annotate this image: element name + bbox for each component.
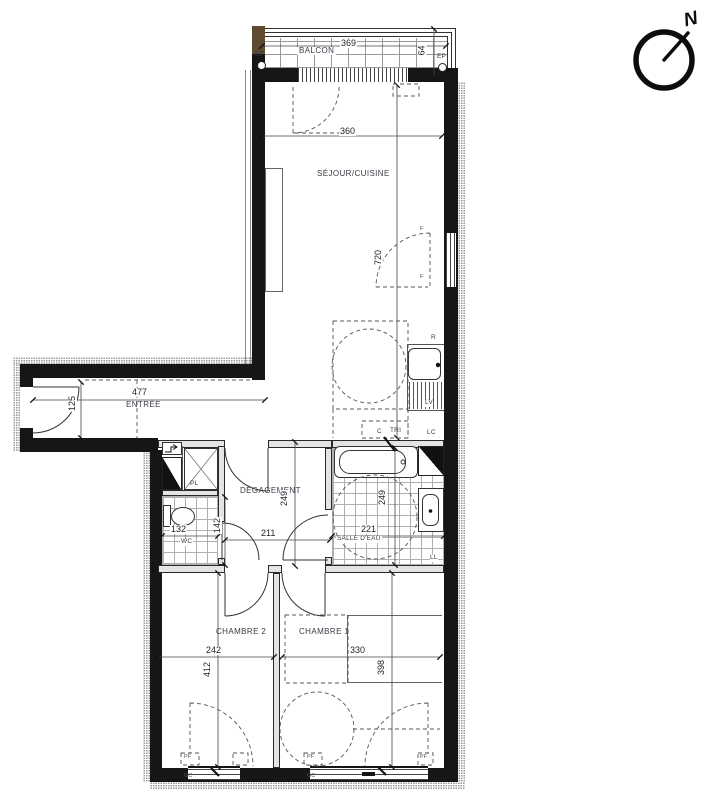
- c-label: C: [377, 429, 382, 436]
- ep-label: EP: [255, 52, 264, 59]
- entry-zone-dashed: [85, 380, 252, 438]
- dim-entree-width: 477: [131, 388, 148, 397]
- wall: [444, 287, 458, 768]
- partition: [182, 446, 183, 490]
- dim-wc-width: 132: [170, 525, 187, 534]
- shutter-box-dashed: [393, 84, 419, 96]
- porte-fenetre-label: PF: [184, 755, 191, 761]
- garde-corps-label: GC: [184, 774, 192, 780]
- wall: [252, 26, 265, 54]
- door-swing-arc: [283, 515, 328, 560]
- window-handle: [362, 772, 375, 776]
- dim-wc-depth: 142: [213, 517, 222, 534]
- dim-balcony-width: 369: [340, 39, 357, 48]
- dim-degagement-width: 211: [260, 529, 276, 538]
- dim-chambre1-depth: 398: [377, 659, 386, 676]
- downpipe-icon: [438, 63, 447, 72]
- clearance-circle-dashed: [280, 692, 354, 766]
- partition: [218, 558, 225, 565]
- balcony-railing: [258, 28, 456, 29]
- bathtub-icon: [339, 450, 406, 474]
- bedroom2-window: [188, 766, 240, 782]
- wall: [252, 66, 265, 380]
- room-label-entree: ENTRÉE: [126, 401, 161, 409]
- porte-fenetre-label: PF: [307, 755, 314, 761]
- wall: [20, 378, 33, 387]
- vent-grille-icon: [162, 442, 182, 455]
- partition: [268, 440, 332, 448]
- room-label-chambre1: CHAMBRE 1: [299, 628, 349, 636]
- room-label-salle-eau: SALLE D'EAU: [336, 536, 382, 543]
- lave-linge-label: LL: [430, 555, 438, 562]
- kitchen-sink-icon: [408, 348, 441, 380]
- kitchen-counter: [407, 410, 444, 411]
- door-swing-arc: [225, 573, 268, 616]
- dim-salle-eau-depth: 249: [378, 489, 387, 506]
- balcony-railing: [258, 32, 452, 33]
- room-label-wc: WC: [180, 539, 193, 546]
- fenetre-label: F: [420, 227, 423, 233]
- partition: [158, 565, 225, 573]
- wall-lining: [245, 70, 251, 370]
- wall: [20, 364, 252, 378]
- balcony-sliding-door: [296, 68, 410, 82]
- facade-texture-entry-top: [13, 357, 252, 364]
- room-label-balcon: BALCON: [297, 47, 336, 55]
- living-room-window: [444, 233, 458, 287]
- facade-texture-right: [458, 82, 465, 782]
- fenetre-label: F: [420, 275, 423, 281]
- downpipe-icon: [257, 61, 266, 70]
- window-swing-dashed: [365, 703, 428, 766]
- tri-cupboard-dashed: [362, 421, 408, 438]
- door-swing-arc: [282, 573, 325, 616]
- window-swing-dashed: [190, 703, 253, 766]
- door-swing-arc: [225, 448, 268, 491]
- room-label-placard: PL: [190, 481, 198, 488]
- dim-chambre2-depth: 412: [203, 661, 212, 678]
- wall: [410, 68, 458, 82]
- lave-vaisselle-label: LV: [425, 400, 433, 407]
- partition: [325, 448, 332, 510]
- tri-label: TRI: [390, 428, 401, 435]
- dim-sejour-width: 360: [339, 127, 356, 136]
- washbasin-icon: [422, 494, 439, 526]
- ep-label: EP: [437, 54, 446, 61]
- dim-entree-depth: 125: [68, 395, 77, 412]
- window-swing-dashed: [293, 87, 341, 133]
- pf-box-dashed: [233, 753, 248, 765]
- facade-texture-left-lower: [143, 452, 150, 782]
- wall: [444, 82, 458, 233]
- dim-salle-eau-width: 221: [360, 525, 377, 534]
- door-swing-arc: [222, 523, 259, 560]
- lc-label: LC: [427, 430, 436, 437]
- kitchen-worktop: [265, 168, 283, 292]
- partition: [218, 446, 225, 522]
- dim-chambre1-width: 330: [349, 646, 366, 655]
- partition: [325, 557, 332, 565]
- facade-texture-entry-left: [13, 364, 20, 452]
- dim-degagement-depth: 249: [280, 490, 289, 507]
- table-zone-dashed: [333, 321, 408, 409]
- room-label-sejour-cuisine: SÉJOUR/CUISINE: [317, 170, 390, 178]
- facade-texture-bottom: [150, 782, 465, 789]
- closet-zone-dashed: [285, 615, 348, 683]
- floor-plan: N BALCON SÉJOUR/CUISINE ENTRÉE DÉGAGEMEN…: [0, 0, 710, 800]
- partition: [273, 573, 280, 768]
- wall: [150, 768, 188, 782]
- fridge-label: R: [431, 335, 436, 342]
- duct-shaft-icon: [418, 446, 444, 476]
- dim-balcony-depth: 64: [418, 44, 427, 56]
- wall: [240, 768, 310, 782]
- dim-chambre2-width: 242: [205, 646, 222, 655]
- wall: [150, 450, 162, 768]
- room-label-chambre2: CHAMBRE 2: [216, 628, 266, 636]
- balcony-railing: [258, 36, 448, 37]
- partition: [325, 565, 444, 573]
- room-label-degagement: DÉGAGEMENT: [240, 487, 301, 495]
- toilet-icon: [163, 505, 171, 527]
- partition: [162, 490, 218, 496]
- kitchen-counter: [407, 344, 444, 345]
- clearance-circle-dashed: [332, 329, 406, 403]
- porte-fenetre-label: PF: [420, 755, 427, 761]
- wall: [20, 438, 158, 452]
- partition: [268, 565, 282, 573]
- wall: [428, 768, 458, 782]
- dim-sejour-length: 720: [374, 249, 383, 266]
- duct-shaft-icon: [162, 457, 182, 490]
- garde-corps-label: GC: [307, 774, 315, 780]
